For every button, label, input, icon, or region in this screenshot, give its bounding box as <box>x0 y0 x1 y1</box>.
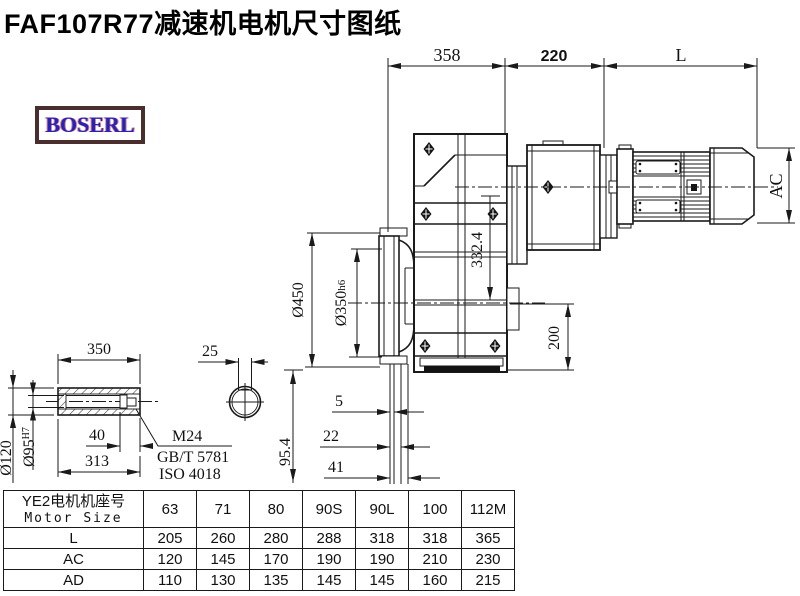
row-label: L <box>4 528 144 549</box>
col-header: 71 <box>197 491 250 528</box>
cell: 110 <box>144 570 197 591</box>
cell: 205 <box>144 528 197 549</box>
cell: 145 <box>356 570 409 591</box>
cell: 280 <box>250 528 303 549</box>
output-flange <box>379 228 414 484</box>
m24-washer <box>120 395 127 408</box>
dim-spigot-diameter: Ø350h6 <box>333 279 350 326</box>
dim-flange-step-1: 5 <box>335 393 343 410</box>
center-offset-dimension: 95.4 <box>277 370 303 483</box>
cell: 215 <box>462 570 515 591</box>
cell: 145 <box>197 549 250 570</box>
dim-center-height: 332.4 <box>469 232 486 268</box>
table-row: AC 120 145 170 190 190 210 230 <box>4 549 515 570</box>
header-en: Motor Size <box>4 511 143 526</box>
dim-center-to-base: 200 <box>546 326 563 350</box>
dim-flange-step-3: 41 <box>328 459 344 476</box>
cell: 365 <box>462 528 515 549</box>
drawing-page: FAF107R77减速机电机尺寸图纸 BOSERL <box>0 0 800 596</box>
dim-keyway-width: 25 <box>202 343 218 360</box>
gearbox-housing <box>414 134 519 372</box>
cell: 230 <box>462 549 515 570</box>
col-header: 63 <box>144 491 197 528</box>
cell: 120 <box>144 549 197 570</box>
ac-dimension: AC <box>757 148 795 223</box>
thread-standard-iso: ISO 4018 <box>159 466 221 483</box>
header-cn: YE2电机机座号 <box>4 493 143 511</box>
table-header-row: YE2电机机座号 Motor Size 63 71 80 90S 90L 100… <box>4 491 515 528</box>
cell: 190 <box>356 549 409 570</box>
col-header: 90S <box>303 491 356 528</box>
fan-cover <box>710 148 754 224</box>
col-header: 100 <box>409 491 462 528</box>
cell: 318 <box>356 528 409 549</box>
dim-bore-diameter: Ø95H7 <box>21 427 38 467</box>
table-header-motor-size: YE2电机机座号 Motor Size <box>4 491 144 528</box>
table-row: AD 110 130 135 145 145 160 215 <box>4 570 515 591</box>
dim-center-offset: 95.4 <box>277 438 294 466</box>
gearbox-foot <box>420 358 503 366</box>
flange-plate <box>379 236 399 356</box>
dim-flange-step-2: 22 <box>323 428 339 445</box>
col-header: 112M <box>462 491 515 528</box>
col-header: 80 <box>250 491 303 528</box>
m24-bolt-head <box>127 398 136 406</box>
dim-motor-length: L <box>676 45 687 65</box>
col-header: 90L <box>356 491 409 528</box>
dim-shaft-length: 350 <box>87 341 111 358</box>
table-row: L 205 260 280 288 318 318 365 <box>4 528 515 549</box>
cell: 210 <box>409 549 462 570</box>
thread-spec-label: M24 <box>172 428 202 445</box>
motor-adapter <box>507 141 617 264</box>
row-label: AC <box>4 549 144 570</box>
gearbox-outline <box>414 134 507 372</box>
row-label: AD <box>4 570 144 591</box>
thread-standard-gb: GB/T 5781 <box>157 449 229 466</box>
flange-step-dimensions: 5 22 41 <box>320 393 440 478</box>
spigot-tolerance: h6 <box>336 279 348 291</box>
dim-shaft-outer-diameter: Ø120 <box>0 440 15 476</box>
cell: 135 <box>250 570 303 591</box>
spigot-value: Ø350 <box>333 291 350 327</box>
motor-size-table: YE2电机机座号 Motor Size 63 71 80 90S 90L 100… <box>3 490 515 591</box>
dim-gearbox-width: 358 <box>434 45 461 65</box>
dim-shaft-end-depth: 40 <box>89 427 105 444</box>
adapter-housing <box>527 145 600 250</box>
cell: 260 <box>197 528 250 549</box>
hollow-shaft-detail: 350 Ø120 Ø95H7 40 313 <box>0 341 268 483</box>
cell: 288 <box>303 528 356 549</box>
bore-tolerance: H7 <box>21 427 32 439</box>
cell: 160 <box>409 570 462 591</box>
flange-dimensions: Ø450 Ø350h6 <box>290 233 382 367</box>
dim-shaft-usable-length: 313 <box>85 453 109 470</box>
dim-motor-height: AC <box>766 173 786 198</box>
bore-value: Ø95 <box>21 439 38 467</box>
cell: 190 <box>303 549 356 570</box>
dim-flange-diameter: Ø450 <box>290 282 307 318</box>
cell: 170 <box>250 549 303 570</box>
cell: 145 <box>303 570 356 591</box>
cell: 318 <box>409 528 462 549</box>
cell: 130 <box>197 570 250 591</box>
dim-adapter-width: 220 <box>541 48 568 65</box>
